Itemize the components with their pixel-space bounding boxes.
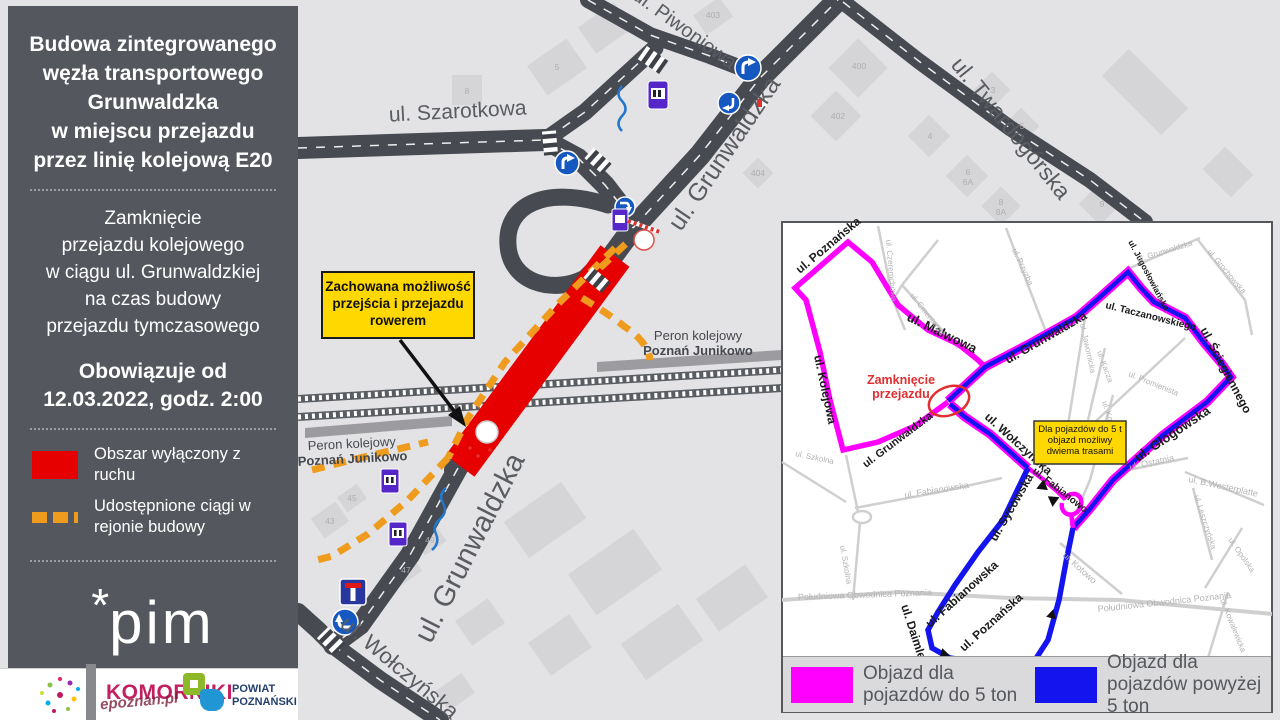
building-number: 47 [401,565,411,575]
closure-label: Zamknięcie [867,373,935,387]
building-number: 8A [996,207,1007,217]
inset-detour-map: Zamknięcie przejazdu ul. Poznańska ul. K… [782,214,1272,712]
pim-logo-text: pim [109,589,215,656]
effective-line: Obowiązuje od [8,358,298,386]
platform-label: Peron kolejowy [654,328,743,343]
komorniki-confetti-icon [30,669,90,720]
closure-line: w ciągu ul. Grunwaldzkiej [8,259,298,286]
no-traffic-sign-icon [634,230,654,250]
inset-legend: Objazd dla pojazdów do 5 ton Objazd dla … [783,656,1271,712]
inset-legend-label: Objazd dla pojazdów powyżej 5 ton [1107,652,1271,718]
powiat-line: POWIAT [232,683,297,696]
bus-stop-sign-icon [389,522,407,546]
effective-date: Obowiązuje od 12.03.2022, godz. 2:00 [8,358,298,414]
building-number: 6 [966,167,971,177]
magenta-swatch [791,667,853,703]
building-number: 3 [991,85,996,95]
turn-sign-icon [735,55,761,81]
building-number: 49 [425,535,435,545]
powiat-line: POZNAŃSKI [232,696,297,709]
building-number: 4 [928,131,933,141]
partner-logos-strip: KOMORNIKI epoznan.pl POWIAT POZNAŃSKI [0,668,298,720]
platform-label: Poznań Junikowo [643,343,753,358]
callout-text: przejścia i przejazdu [332,296,463,311]
building-number: 402 [831,111,845,121]
title-line: przez linię kolejową E20 [8,146,298,175]
dotted-divider [30,189,276,191]
title-line: Grunwaldzka [8,88,298,117]
building-number: 5 [1020,121,1025,131]
closure-line: przejazdu kolejowego [8,232,298,259]
info-sidebar: Budowa zintegrowanego węzła transportowe… [8,6,298,668]
inset-note-text: dwiema trasami [1047,446,1114,457]
dotted-divider [30,560,276,562]
building-number: 8 [465,86,470,96]
blue-swatch [1035,667,1097,703]
effective-line: 12.03.2022, godz. 2:00 [8,386,298,414]
closure-line: przejazdu tymczasowego [8,313,298,340]
infographic-poster: ul. Szarotkowa ul. Piwoniowa ul. Grunwal… [0,0,1280,720]
bus-stop-sign-icon [648,81,668,109]
dead-end-sign-icon [340,579,366,605]
building-number: 43 [325,516,335,526]
building-number: 9 [1100,199,1105,209]
building-number: 400 [852,61,866,71]
building-number: 45 [347,493,357,503]
callout-text: rowerem [370,313,426,328]
building-number: 6A [963,177,974,187]
dotted-divider [30,428,276,430]
title-line: w miejscu przejazdu [8,117,298,146]
inset-legend-label: Objazd dla pojazdów do 5 ton [863,663,1027,707]
closure-description: Zamknięcie przejazdu kolejowego w ciągu … [8,205,298,340]
legend-label: Udostępnione ciągi w rejonie budowy [94,496,274,538]
powiat-logo-blue-icon [200,689,224,711]
red-swatch [32,451,78,479]
legend-item-walkways: Udostępnione ciągi w rejonie budowy [32,496,274,538]
title-line: węzła transportowego [8,59,298,88]
no-traffic-sign-icon [476,421,498,443]
closure-line: Zamknięcie [8,205,298,232]
inset-note-text: Dla pojazdów do 5 t [1038,424,1122,435]
logo-divider-bar [86,664,96,720]
inset-note-box: Dla pojazdów do 5 t objazd możliwy dwiem… [1034,421,1126,464]
poster-title: Budowa zintegrowanego węzła transportowe… [8,30,298,175]
inset-note-text: objazd możliwy [1048,435,1113,446]
callout-text: Zachowana możliwość [325,279,471,294]
building-number: 403 [706,10,720,20]
orange-dashed-swatch [32,512,78,523]
pim-logo-star: * [91,579,109,631]
pim-logo: *pim [8,578,298,657]
legend-item-closed-area: Obszar wyłączony z ruchu [32,444,274,486]
legend-label: Obszar wyłączony z ruchu [94,444,274,486]
powiat-poznanski-logo: POWIAT POZNAŃSKI [232,683,297,709]
closure-line: na czas budowy [8,286,298,313]
bus-stop-sign-icon [381,469,399,493]
building-number: 8 [999,197,1004,207]
turn-sign-icon [555,151,579,175]
building-number: 404 [751,168,765,178]
closure-label: przejazdu [872,387,930,401]
title-line: Budowa zintegrowanego [8,30,298,59]
building-number: 5 [555,62,560,72]
bus-stop-sign-icon [612,209,628,231]
